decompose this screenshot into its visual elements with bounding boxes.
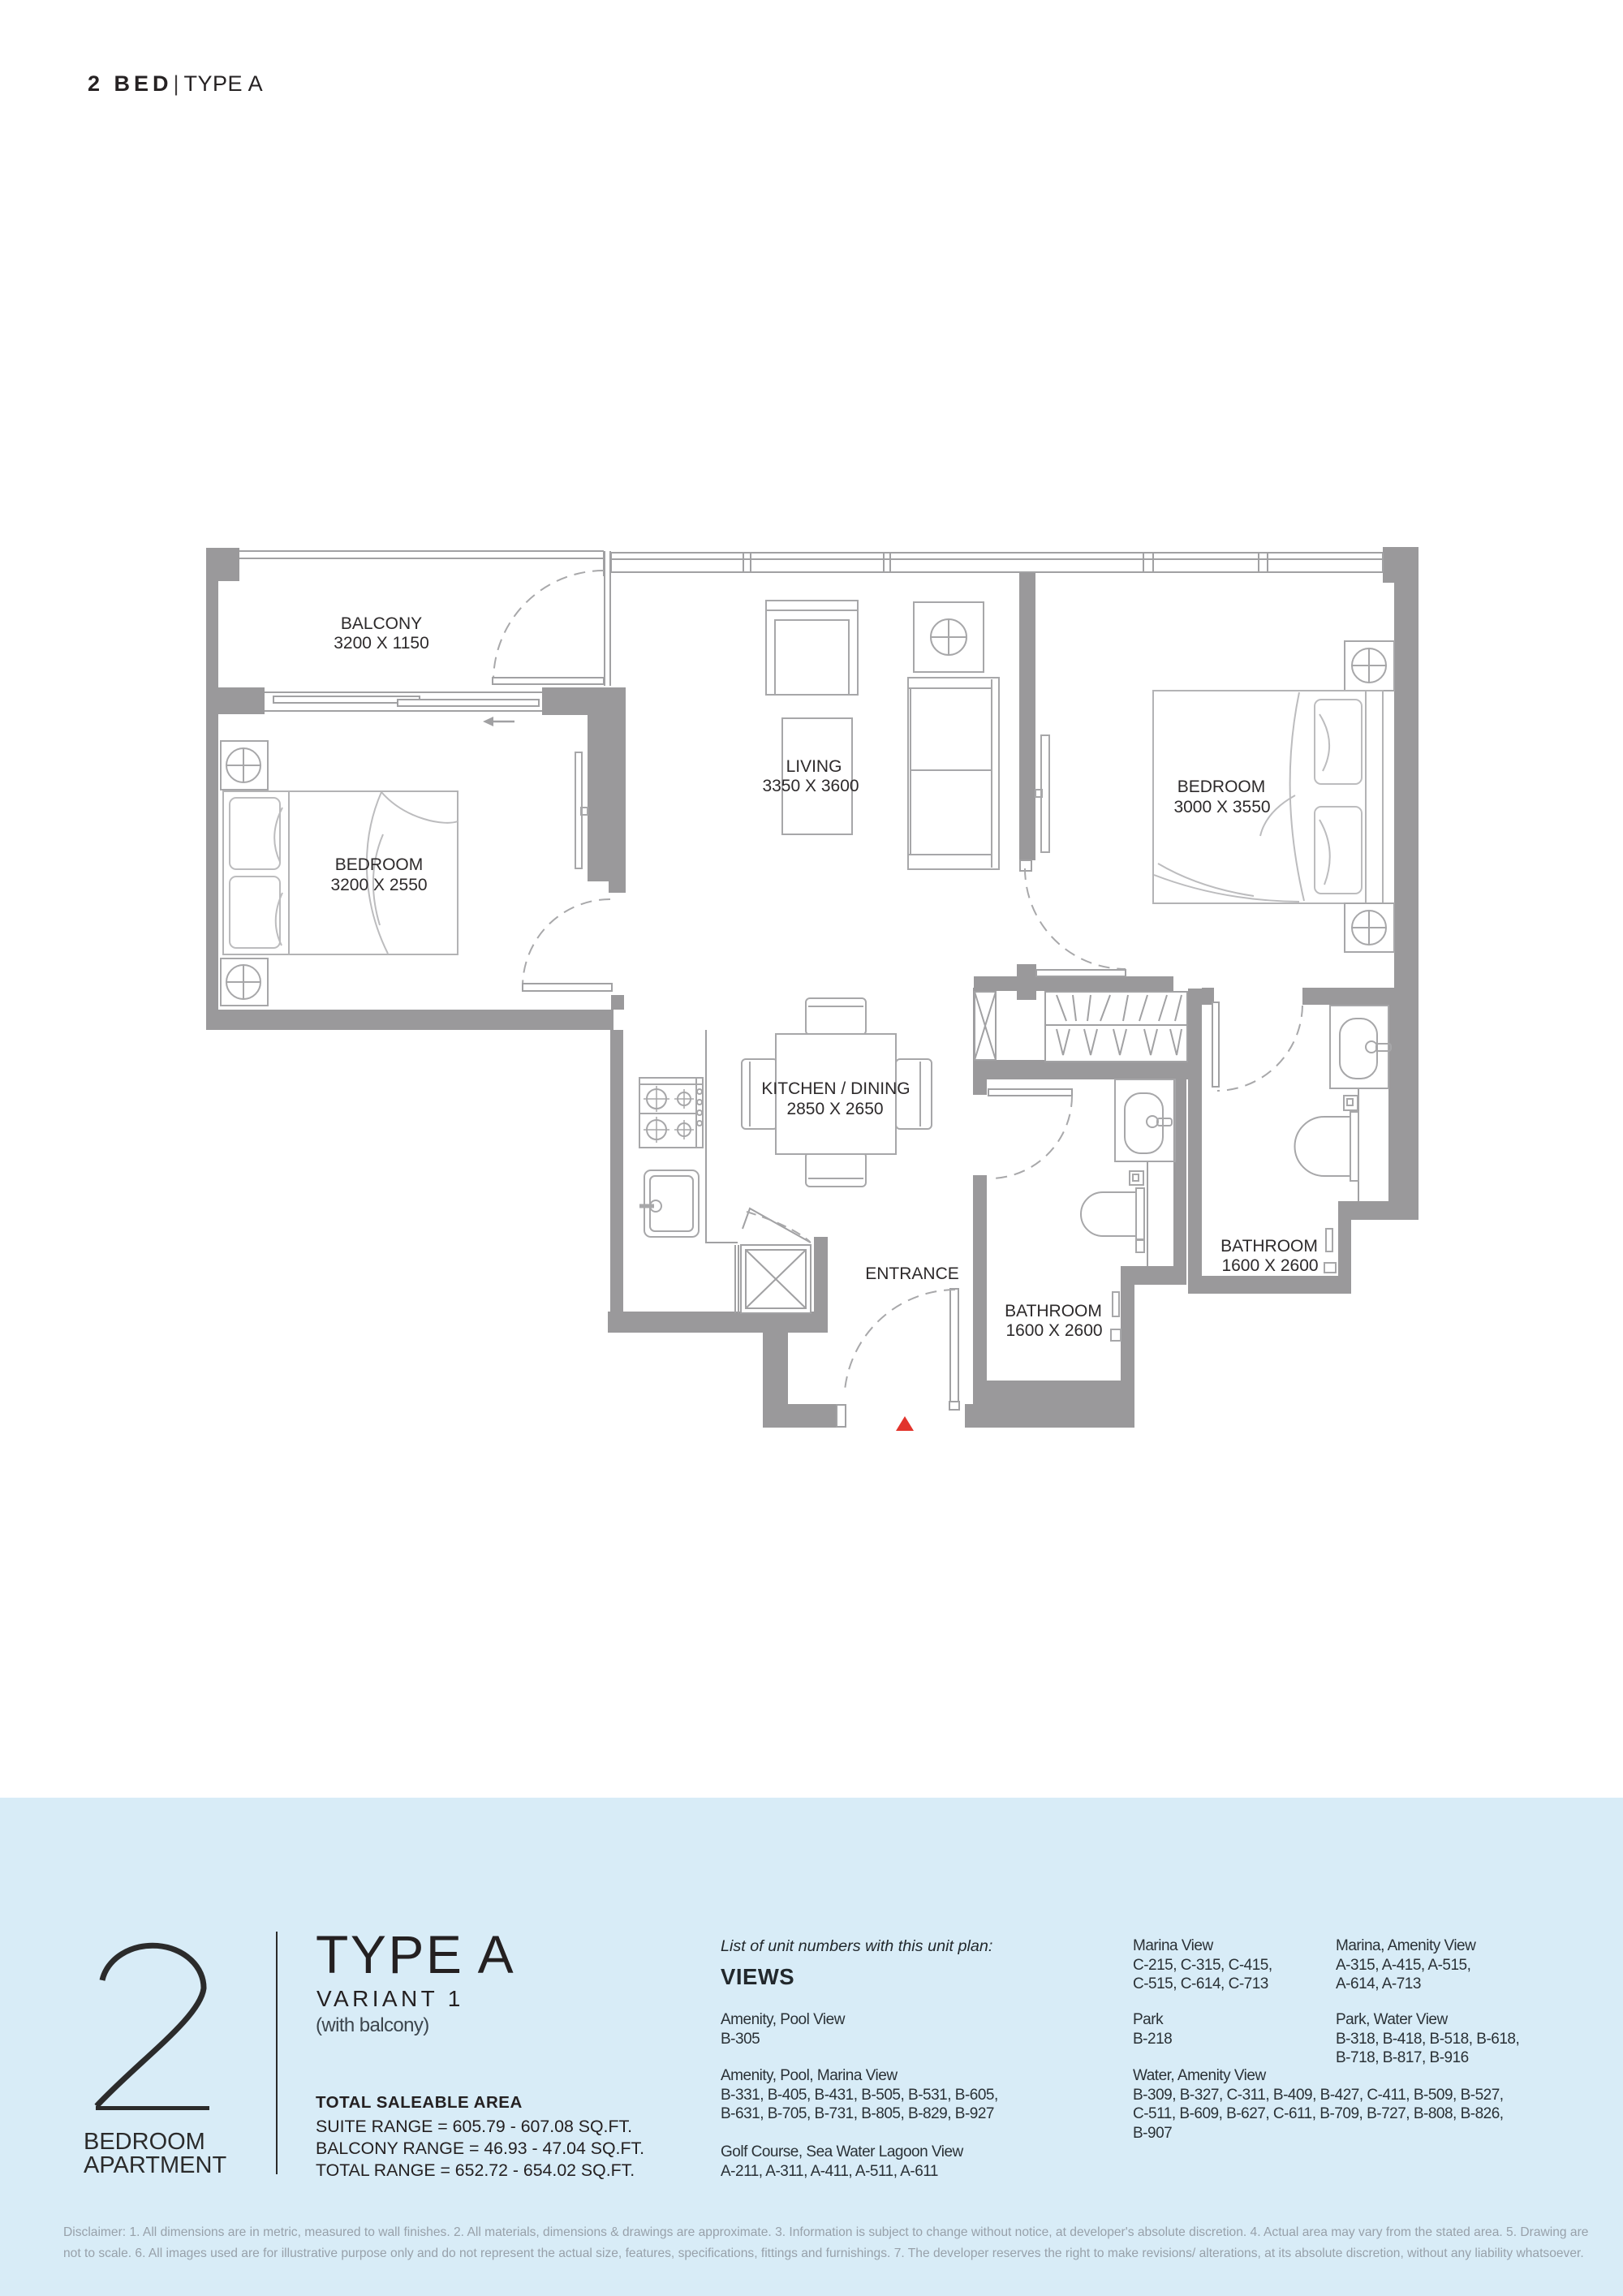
- svg-text:ENTRANCE: ENTRANCE: [865, 1264, 959, 1283]
- svg-text:LIVING: LIVING: [786, 757, 842, 776]
- svg-text:KITCHEN / DINING: KITCHEN / DINING: [761, 1079, 910, 1098]
- svg-text:1600 X 2600: 1600 X 2600: [1005, 1321, 1102, 1340]
- svg-text:3000 X 3550: 3000 X 3550: [1173, 798, 1270, 816]
- svg-text:BEDROOM: BEDROOM: [1177, 778, 1266, 796]
- svg-text:BATHROOM: BATHROOM: [1005, 1302, 1102, 1320]
- svg-text:2850 X 2650: 2850 X 2650: [786, 1100, 883, 1118]
- svg-text:3200 X 1150: 3200 X 1150: [334, 634, 429, 653]
- svg-text:BATHROOM: BATHROOM: [1220, 1237, 1318, 1256]
- svg-text:3200 X 2550: 3200 X 2550: [330, 876, 427, 894]
- svg-text:BEDROOM: BEDROOM: [335, 855, 424, 874]
- svg-text:3350 X 3600: 3350 X 3600: [762, 777, 859, 795]
- svg-text:1600 X 2600: 1600 X 2600: [1221, 1256, 1318, 1275]
- svg-text:BALCONY: BALCONY: [341, 614, 422, 633]
